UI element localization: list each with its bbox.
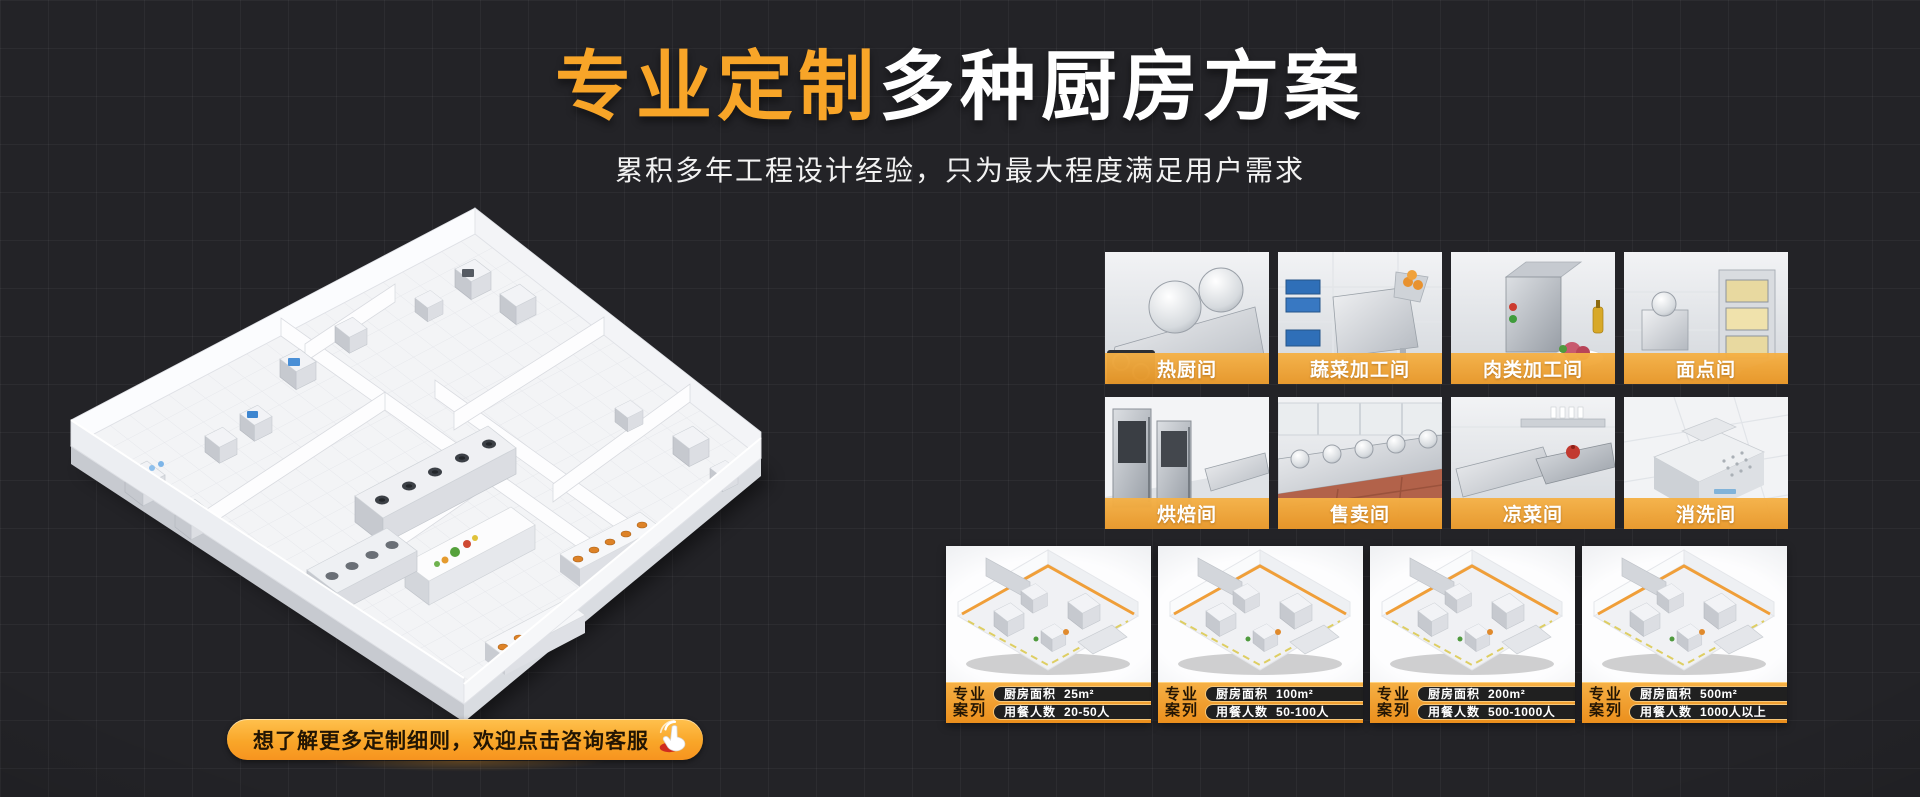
case-room-render [1582, 546, 1787, 682]
case-pills: 厨房面积 200m² 用餐人数 500-1000人 [1417, 686, 1575, 720]
case-label-bar: 专业 案列 厨房面积 25m² 用餐人数 20-50人 [946, 682, 1151, 723]
kitchen-area-pill: 厨房面积 100m² [1205, 686, 1363, 702]
kitchen-area-pill: 厨房面积 25m² [993, 686, 1151, 702]
room-card-cold-dish[interactable]: 凉菜间 [1451, 397, 1615, 529]
case-pills: 厨房面积 500m² 用餐人数 1000人以上 [1629, 686, 1787, 720]
case-card-200[interactable]: 专业 案列 厨房面积 200m² 用餐人数 500-1000人 [1370, 546, 1575, 723]
room-card-meat-processing[interactable]: 肉类加工间 [1451, 252, 1615, 384]
room-label-banner: 售卖间 [1278, 498, 1442, 529]
page-title-highlight: 专业定制 [555, 45, 879, 130]
room-label-banner: 烘焙间 [1105, 498, 1269, 529]
kitchen-area-pill: 厨房面积 500m² [1629, 686, 1787, 702]
case-tag: 专业 案列 [1377, 687, 1411, 719]
case-photo [1158, 546, 1363, 682]
case-photo [1370, 546, 1575, 682]
page-subtitle: 累积多年工程设计经验，只为最大程度满足用户需求 [0, 149, 1920, 189]
case-card-100[interactable]: 专业 案列 厨房面积 100m² 用餐人数 50-100人 [1158, 546, 1363, 723]
case-room-render [1158, 546, 1363, 682]
room-label-banner: 凉菜间 [1451, 498, 1615, 529]
room-cards-grid: 热厨间 蔬菜加工间 [1105, 252, 1788, 529]
diners-pill: 用餐人数 500-1000人 [1417, 704, 1575, 720]
room-label-banner: 蔬菜加工间 [1278, 353, 1442, 384]
room-card-pastry[interactable]: 面点间 [1624, 252, 1788, 384]
room-label-banner: 肉类加工间 [1451, 353, 1615, 384]
case-label-bar: 专业 案列 厨房面积 200m² 用餐人数 500-1000人 [1370, 682, 1575, 723]
case-photo [946, 546, 1151, 682]
case-label-bar: 专业 案列 厨房面积 500m² 用餐人数 1000人以上 [1582, 682, 1787, 723]
case-card-25[interactable]: 专业 案列 厨房面积 25m² 用餐人数 20-50人 [946, 546, 1151, 723]
room-card-serving[interactable]: 售卖间 [1278, 397, 1442, 529]
case-pills: 厨房面积 100m² 用餐人数 50-100人 [1205, 686, 1363, 720]
case-photo [1582, 546, 1787, 682]
room-card-vegetable-processing[interactable]: 蔬菜加工间 [1278, 252, 1442, 384]
case-card-500[interactable]: 专业 案列 厨房面积 500m² 用餐人数 1000人以上 [1582, 546, 1787, 723]
room-label: 消洗间 [1676, 500, 1736, 527]
room-label: 烘焙间 [1157, 500, 1217, 527]
room-label-banner: 消洗间 [1624, 498, 1788, 529]
case-cards-row: 专业 案列 厨房面积 25m² 用餐人数 20-50人 [946, 546, 1787, 723]
room-card-baking[interactable]: 烘焙间 [1105, 397, 1269, 529]
case-room-render [1370, 546, 1575, 682]
consult-service-button[interactable]: 想了解更多定制细则，欢迎点击咨询客服 [227, 719, 703, 760]
room-card-hot-kitchen[interactable]: 热厨间 [1105, 252, 1269, 384]
page-title-rest: 多种厨房方案 [879, 45, 1365, 130]
case-pills: 厨房面积 25m² 用餐人数 20-50人 [993, 686, 1151, 720]
hand-click-icon [655, 718, 693, 756]
diners-pill: 用餐人数 50-100人 [1205, 704, 1363, 720]
page-title: 专业定制多种厨房方案 [0, 44, 1920, 131]
room-card-dishwashing[interactable]: 消洗间 [1624, 397, 1788, 529]
kitchen-area-pill: 厨房面积 200m² [1417, 686, 1575, 702]
room-label: 蔬菜加工间 [1310, 355, 1410, 382]
room-label: 面点间 [1676, 355, 1736, 382]
consult-service-label: 想了解更多定制细则，欢迎点击咨询客服 [253, 725, 649, 755]
case-tag: 专业 案列 [1165, 687, 1199, 719]
promo-banner-page: 专业定制多种厨房方案 累积多年工程设计经验，只为最大程度满足用户需求 [0, 0, 1920, 797]
kitchen-floorplan-3d-illustration [55, 192, 800, 747]
case-label-bar: 专业 案列 厨房面积 100m² 用餐人数 50-100人 [1158, 682, 1363, 723]
case-room-render [946, 546, 1151, 682]
room-label-banner: 热厨间 [1105, 353, 1269, 384]
room-label-banner: 面点间 [1624, 353, 1788, 384]
diners-pill: 用餐人数 1000人以上 [1629, 704, 1787, 720]
room-label: 售卖间 [1330, 500, 1390, 527]
case-tag: 专业 案列 [953, 687, 987, 719]
diners-pill: 用餐人数 20-50人 [993, 704, 1151, 720]
room-label: 凉菜间 [1503, 500, 1563, 527]
room-label: 热厨间 [1157, 355, 1217, 382]
room-label: 肉类加工间 [1483, 355, 1583, 382]
hero-section: 专业定制多种厨房方案 累积多年工程设计经验，只为最大程度满足用户需求 [0, 44, 1920, 189]
case-tag: 专业 案列 [1589, 687, 1623, 719]
